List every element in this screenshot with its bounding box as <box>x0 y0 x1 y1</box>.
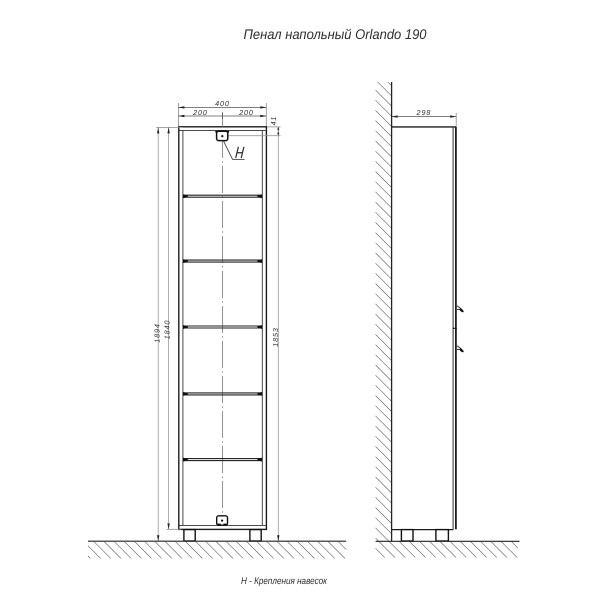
svg-text:Н - Крепления навесок: Н - Крепления навесок <box>241 576 327 587</box>
svg-text:200: 200 <box>238 108 254 117</box>
svg-text:1894: 1894 <box>152 323 161 343</box>
svg-text:1840: 1840 <box>162 320 171 340</box>
svg-text:Пенал напольный Orlando 190: Пенал напольный Orlando 190 <box>244 26 427 42</box>
svg-text:400: 400 <box>215 99 230 108</box>
svg-text:298: 298 <box>416 108 432 117</box>
svg-text:41: 41 <box>269 116 278 126</box>
svg-text:1853: 1853 <box>271 327 280 347</box>
svg-text:200: 200 <box>192 108 208 117</box>
